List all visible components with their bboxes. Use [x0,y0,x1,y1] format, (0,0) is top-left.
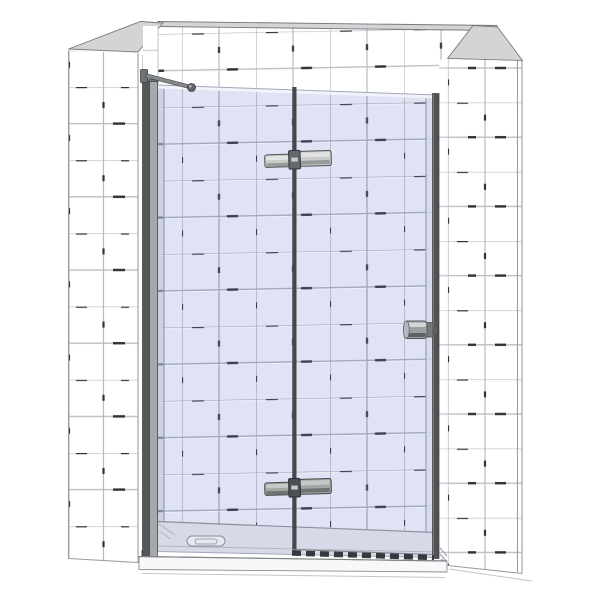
door-knob [403,321,437,339]
product-image [0,0,600,600]
drain-cover [187,536,225,546]
shower-door-rendering [0,0,600,600]
left-reveal-through-glass [158,85,165,552]
door-edge-profile [433,94,440,559]
wall-profile [142,80,158,560]
right-reveal [439,59,448,567]
right-wall [448,59,532,581]
left-wall [69,51,144,563]
support-bar-clamp [188,84,196,92]
